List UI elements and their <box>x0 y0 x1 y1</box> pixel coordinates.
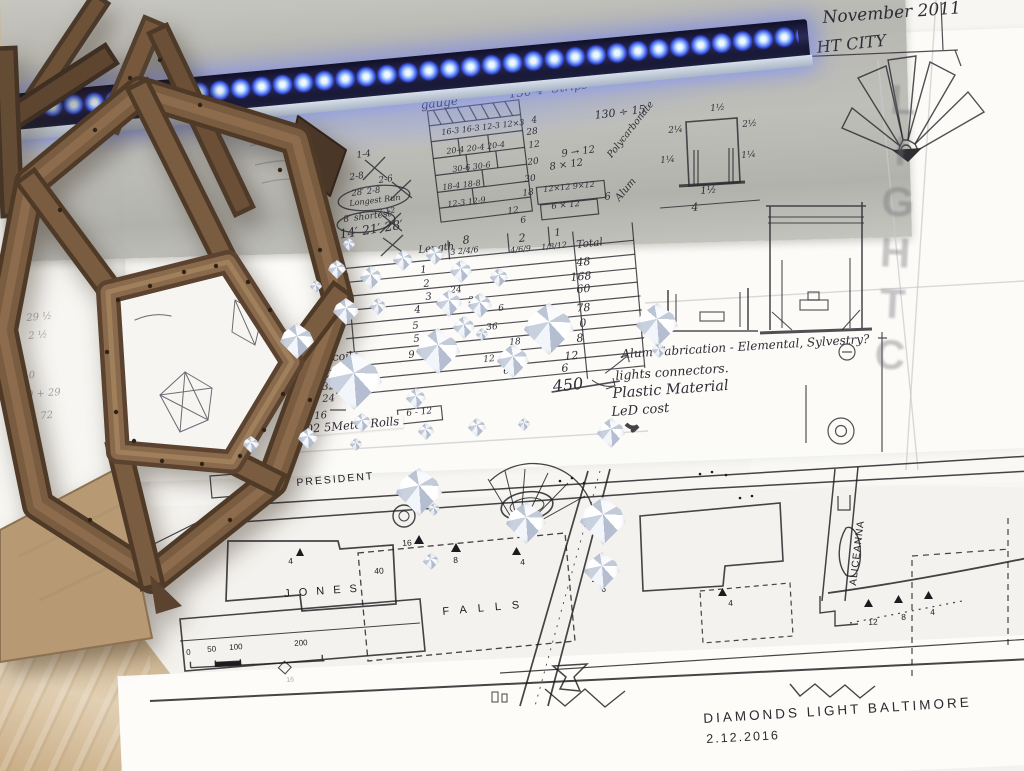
crystal-gem <box>597 418 625 448</box>
crystal-gem <box>506 502 546 544</box>
crystal-gem <box>326 352 382 410</box>
crystal-gem <box>360 266 382 289</box>
crystal-gem <box>584 552 620 590</box>
crystal-gem <box>416 328 460 374</box>
photo-scene: November 2011 HT CITY LIGHTC [48 Diamond… <box>0 0 1024 771</box>
crystals-layer <box>0 0 1024 771</box>
crystal-gem <box>468 418 486 437</box>
crystal-gem <box>450 260 472 283</box>
crystal-gem <box>426 246 444 265</box>
crystal-gem <box>524 303 574 355</box>
crystal-gem <box>476 328 488 341</box>
crystal-gem <box>370 298 386 315</box>
crystal-gem <box>518 418 530 431</box>
crystal-gem <box>280 323 314 359</box>
crystal-gem <box>490 268 508 287</box>
crystal-gem <box>343 238 355 251</box>
crystal-gem <box>652 343 666 358</box>
crystal-gem <box>353 413 371 432</box>
crystal-gem <box>350 438 362 451</box>
crystal-gem <box>243 436 259 453</box>
crystal-gem <box>423 553 439 570</box>
crystal-gem <box>436 290 462 317</box>
crystal-gem <box>333 298 359 325</box>
crystal-gem <box>453 316 475 339</box>
crystal-gem <box>580 497 626 545</box>
crystal-gem <box>468 293 492 318</box>
crystal-gem <box>393 250 413 271</box>
crystal-gem <box>636 303 678 347</box>
crystal-gem <box>310 280 322 293</box>
crystal-gem <box>298 428 318 449</box>
crystal-gem <box>328 260 346 279</box>
crystal-gem <box>497 344 529 378</box>
crystal-gem <box>406 388 426 409</box>
crystal-gem <box>418 423 434 440</box>
